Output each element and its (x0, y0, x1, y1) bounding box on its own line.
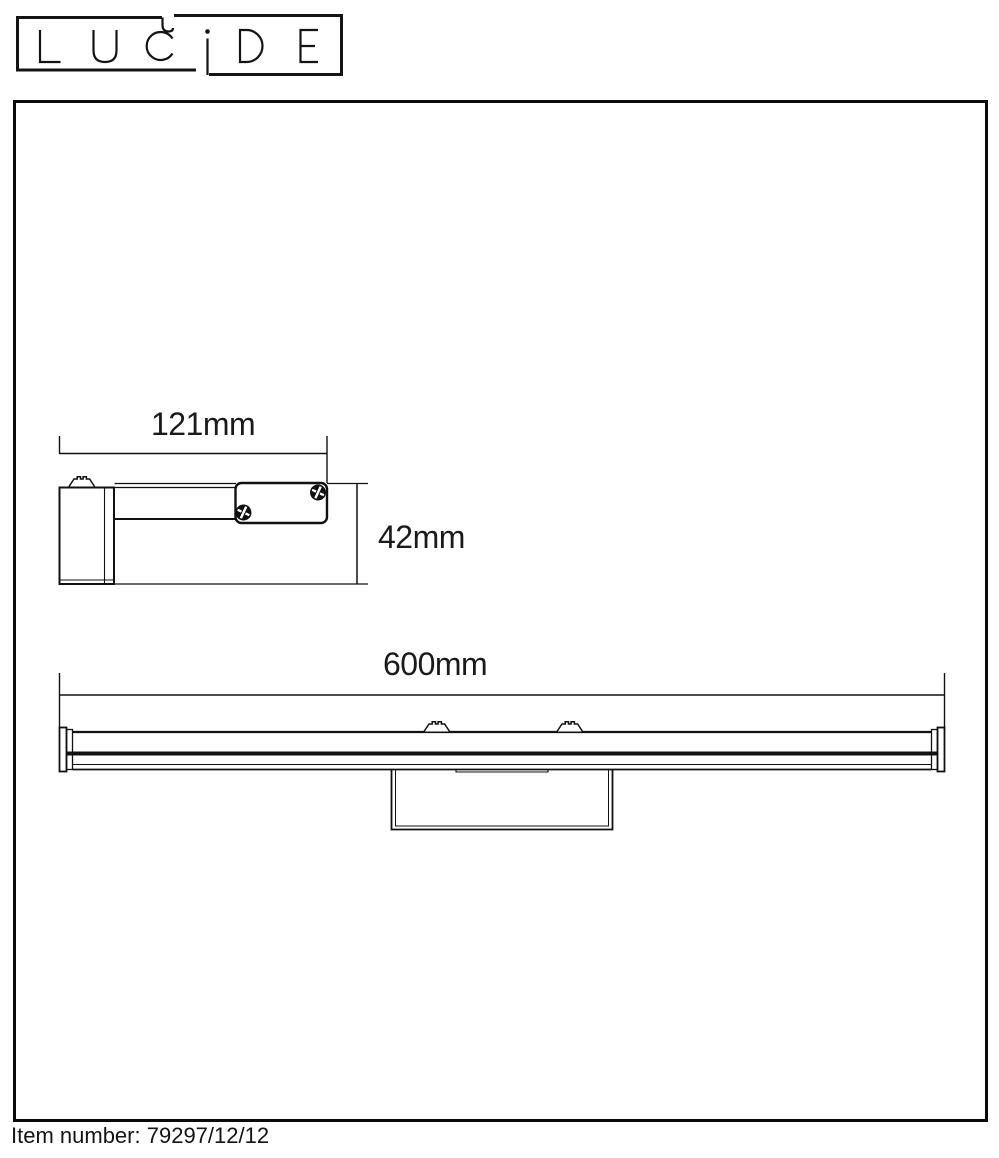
side-width-dimension-label: 121mm (151, 408, 255, 440)
side-bar-profile (60, 488, 115, 585)
front-screw-head-icon (557, 722, 583, 732)
side-width-dimension-lines (60, 436, 328, 483)
side-height-dimension-lines (114, 484, 368, 585)
front-view (60, 673, 945, 830)
side-view (60, 436, 369, 584)
item-number-value: 79297/12/12 (147, 1123, 269, 1148)
front-screw-head-icon (424, 722, 450, 732)
front-width-dimension-lines (60, 673, 945, 731)
front-width-dimension-label: 600mm (383, 648, 487, 680)
item-number-label: Item number: (11, 1123, 141, 1148)
side-height-dimension-label: 42mm (378, 521, 465, 553)
side-screw-head-icon (69, 477, 95, 487)
spec-sheet-page: 121mm 42mm 600mm Item number: 79297/12/1… (0, 0, 999, 1158)
technical-drawing (0, 0, 999, 1158)
item-number: Item number: 79297/12/12 (11, 1125, 269, 1147)
front-bar-body (67, 732, 938, 770)
side-arm (115, 484, 237, 520)
front-wall-mount (392, 770, 613, 830)
